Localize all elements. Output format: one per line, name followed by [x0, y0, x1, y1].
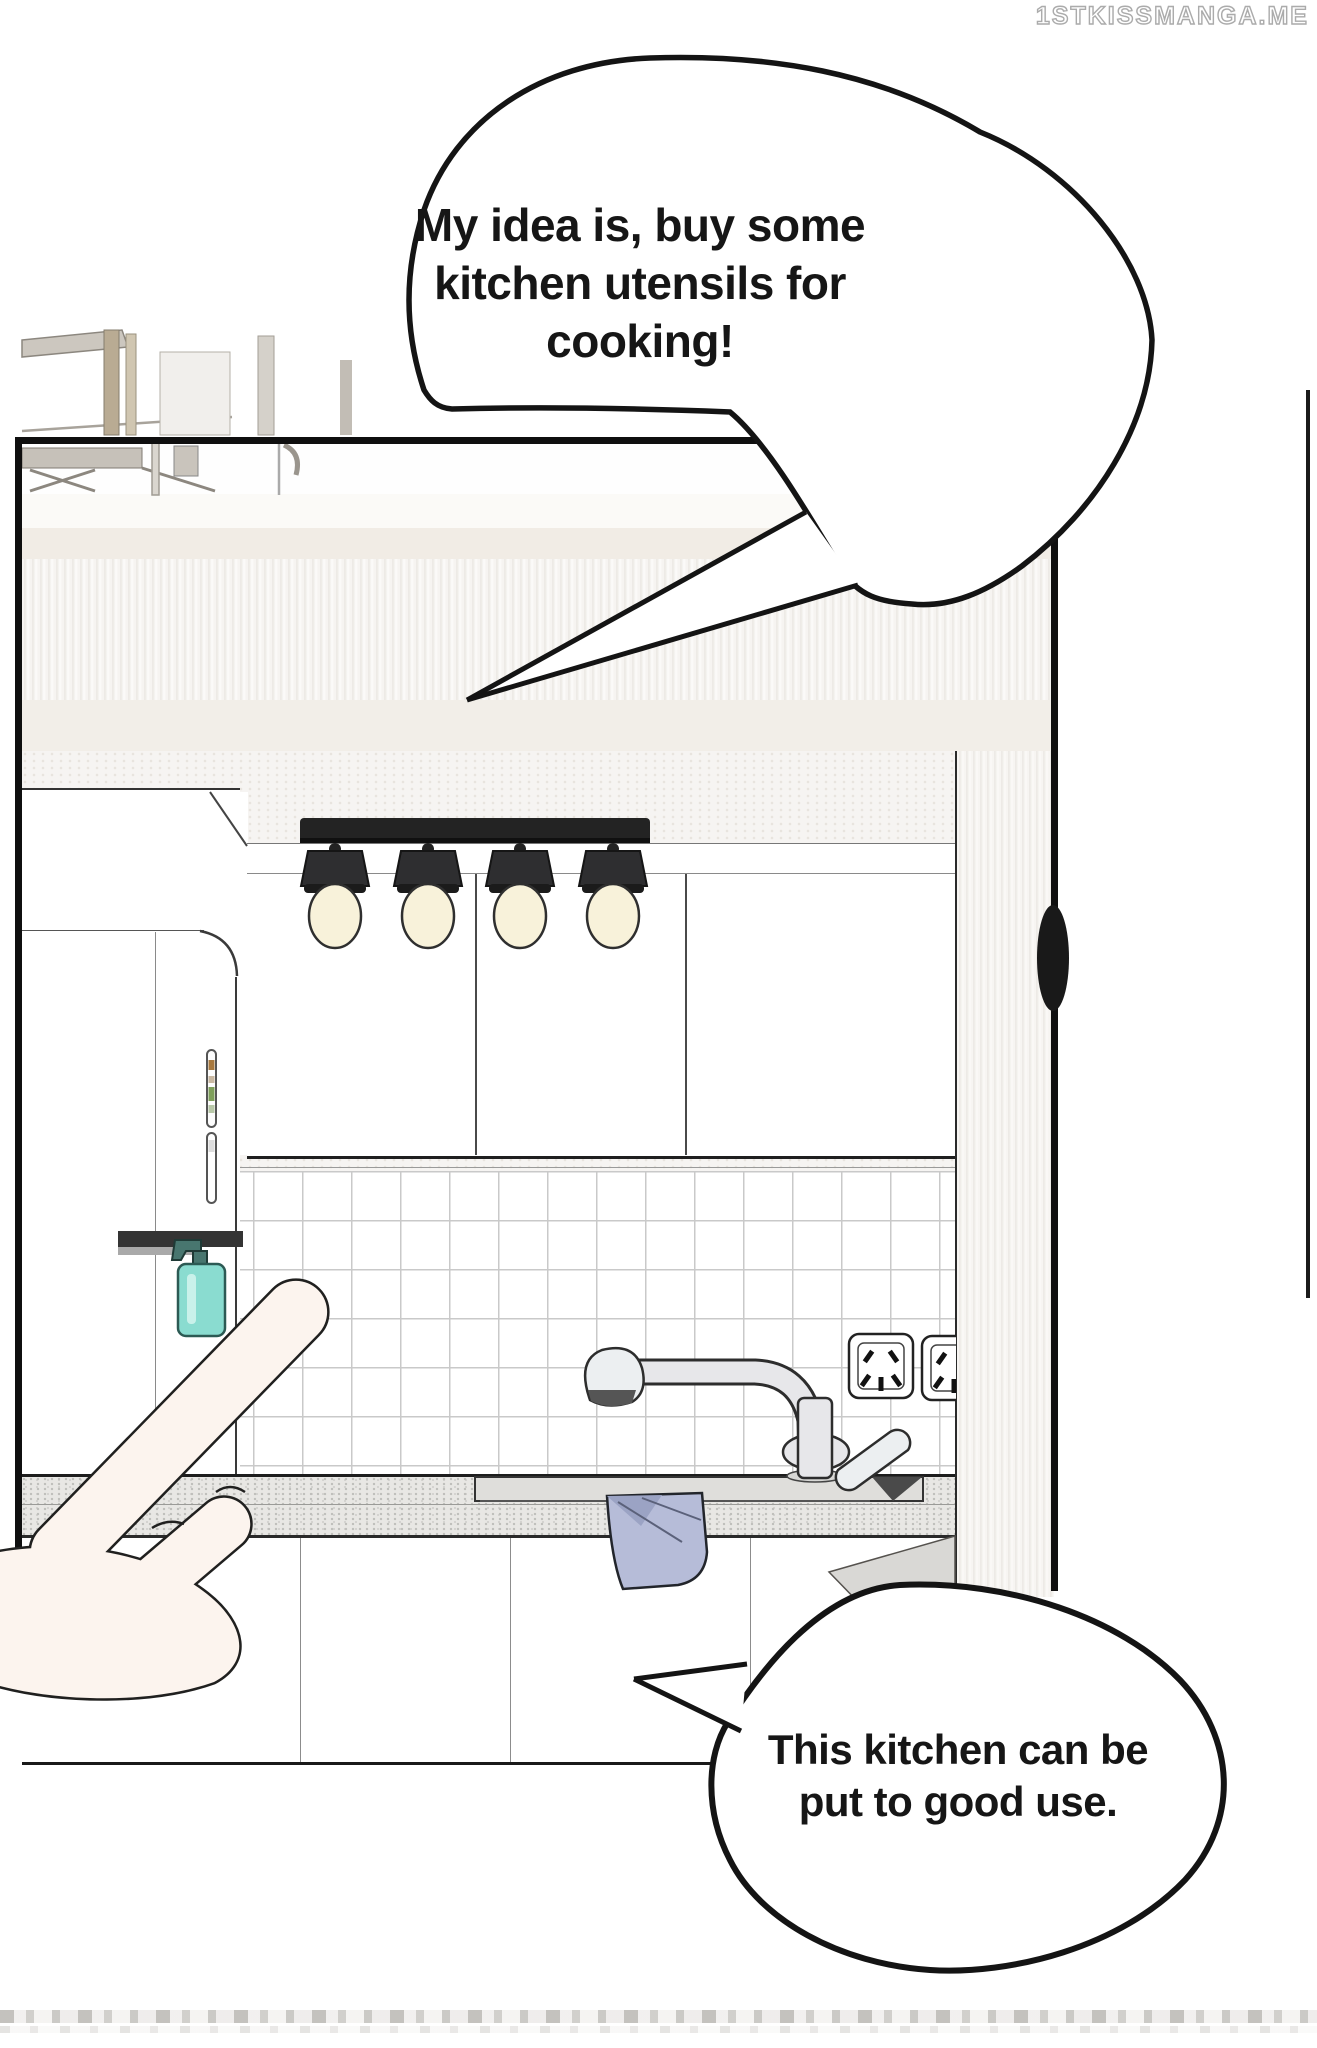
bubble-tail	[467, 512, 858, 700]
speech-line: This kitchen can be	[708, 1724, 1208, 1776]
speech-text-bottom: This kitchen can be put to good use.	[708, 1724, 1208, 1828]
cabinet-corner-edge	[210, 792, 247, 846]
pendant-lamp-icon	[579, 843, 647, 948]
fridge-handle-icon	[207, 1050, 216, 1127]
pendant-lamp-icon	[301, 843, 369, 948]
speech-line: put to good use.	[708, 1776, 1208, 1828]
track-light	[300, 818, 650, 948]
speech-line: kitchen utensils for	[360, 254, 920, 312]
speech-line: cooking!	[360, 312, 920, 370]
speech-line: My idea is, buy some	[360, 196, 920, 254]
door-handle-icon	[1037, 905, 1069, 1011]
dish-towel	[607, 1493, 707, 1589]
manga-page: 1STKISSMANGA.ME	[0, 0, 1317, 2048]
power-outlet-icon	[849, 1334, 913, 1398]
pendant-lamp-icon	[486, 843, 554, 948]
speech-bubble-top	[409, 57, 1152, 700]
site-watermark: 1STKISSMANGA.ME	[1036, 2, 1309, 31]
knuckle-crease	[216, 1487, 245, 1492]
soap-dispenser	[172, 1240, 225, 1336]
pointing-hand	[0, 1281, 327, 1698]
pendant-lamp-icon	[394, 843, 462, 948]
speech-text-top: My idea is, buy some kitchen utensils fo…	[360, 196, 920, 370]
power-outlet-icon	[922, 1336, 986, 1400]
fridge-corner-curve	[200, 931, 237, 976]
bubble-tail	[634, 1664, 747, 1731]
fridge-handle-icon	[207, 1133, 216, 1203]
